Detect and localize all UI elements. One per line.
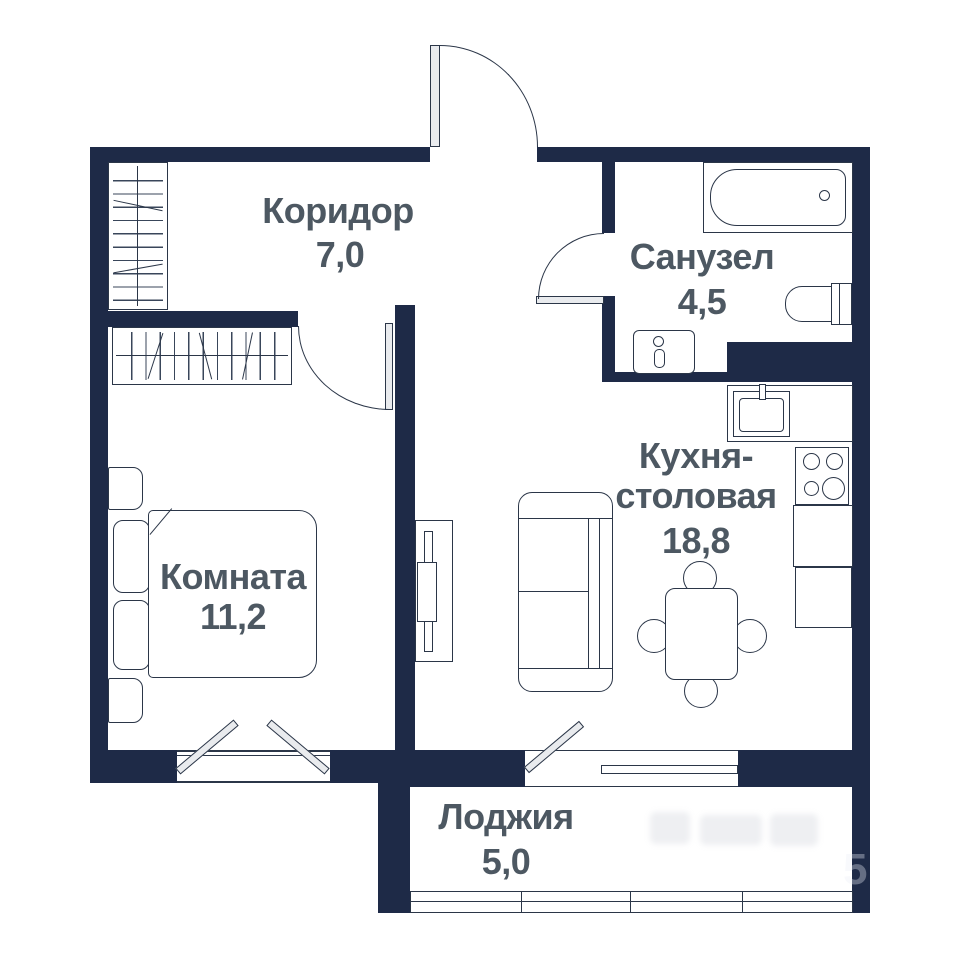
loggia-glazing-mid-line bbox=[410, 901, 853, 902]
washbasin-faucet-head bbox=[653, 336, 664, 347]
nightstand-top bbox=[108, 467, 143, 510]
entrance-door-leaf bbox=[430, 45, 440, 147]
kitchen-label-line2: столовая bbox=[615, 478, 776, 514]
nightstand-bottom bbox=[108, 678, 143, 723]
room-area: 11,2 bbox=[200, 599, 266, 635]
stove-burner-tr bbox=[826, 453, 843, 470]
loggia-label: Лоджия bbox=[438, 799, 573, 835]
floor-plan: Коридор 7,0 Санузел 4,5 Кухня- столовая … bbox=[0, 0, 960, 960]
wall-partition-room-kitchen bbox=[395, 305, 415, 783]
wall-corridor-bottom bbox=[90, 311, 298, 327]
room-door-arc bbox=[298, 326, 390, 410]
sofa-backrest-line-2 bbox=[599, 519, 600, 668]
tv-base bbox=[417, 562, 437, 622]
wall-top-left bbox=[90, 147, 430, 162]
sofa-armrest-bottom-line bbox=[519, 668, 612, 669]
kitchen-counter-mid bbox=[793, 505, 853, 567]
wall-left bbox=[90, 147, 108, 783]
watermark-digit: 5 bbox=[843, 848, 867, 892]
wall-right bbox=[852, 147, 870, 913]
wardrobe-corridor-rail bbox=[137, 166, 138, 306]
bathroom-door-arc bbox=[538, 233, 604, 299]
wall-room-bottom-right bbox=[330, 750, 412, 783]
kitchen-sink-faucet bbox=[759, 384, 766, 400]
corridor-label: Коридор bbox=[262, 193, 413, 229]
loggia-glazing-divider-1 bbox=[521, 891, 522, 913]
pillow-bottom bbox=[113, 600, 150, 670]
bathroom-area: 4,5 bbox=[678, 284, 727, 320]
loggia-glazing-divider-2 bbox=[630, 891, 631, 913]
watermark-blob-1 bbox=[650, 812, 690, 844]
wall-bathroom-left-lower bbox=[602, 296, 615, 382]
wall-bathroom-left-upper bbox=[602, 160, 615, 233]
wardrobe-room-rail bbox=[116, 355, 288, 356]
kitchen-area: 18,8 bbox=[662, 523, 730, 559]
stove-burner-bl bbox=[804, 481, 819, 496]
kitchen-counter-low bbox=[795, 567, 852, 628]
bathroom-label: Санузел bbox=[630, 239, 775, 275]
dining-table bbox=[665, 588, 738, 680]
wall-kitchen-bottom-left bbox=[410, 750, 525, 787]
sofa-backrest-line-1 bbox=[588, 519, 589, 668]
toilet-tank-line bbox=[839, 284, 840, 324]
washbasin-faucet-body bbox=[654, 349, 665, 368]
sofa-seat-divider bbox=[519, 591, 589, 592]
toilet-tank bbox=[831, 283, 852, 325]
dining-chair-right bbox=[733, 619, 767, 653]
corridor-area: 7,0 bbox=[316, 237, 365, 273]
toilet-bowl bbox=[785, 286, 835, 322]
wall-room-bottom-left bbox=[90, 750, 177, 783]
stove-burner-br bbox=[822, 477, 845, 500]
wall-kitchen-bottom-right bbox=[738, 750, 853, 787]
kitchen-window-sill bbox=[601, 765, 738, 774]
wall-top-right bbox=[537, 147, 870, 162]
loggia-area: 5,0 bbox=[482, 844, 531, 880]
watermark-blob-2 bbox=[700, 815, 762, 845]
room-label: Комната bbox=[160, 559, 306, 595]
pillow-top bbox=[113, 520, 150, 593]
stove-burner-tl bbox=[803, 453, 820, 470]
wall-bathroom-bottom-thick bbox=[727, 342, 853, 382]
watermark-blob-3 bbox=[770, 814, 818, 846]
bathtub-drain bbox=[819, 190, 830, 201]
loggia-glazing-divider-3 bbox=[742, 891, 743, 913]
kitchen-sink-basin bbox=[739, 398, 784, 432]
kitchen-label-line1: Кухня- bbox=[639, 438, 753, 474]
entrance-door-arc bbox=[440, 45, 538, 147]
wall-loggia-left bbox=[378, 783, 410, 913]
